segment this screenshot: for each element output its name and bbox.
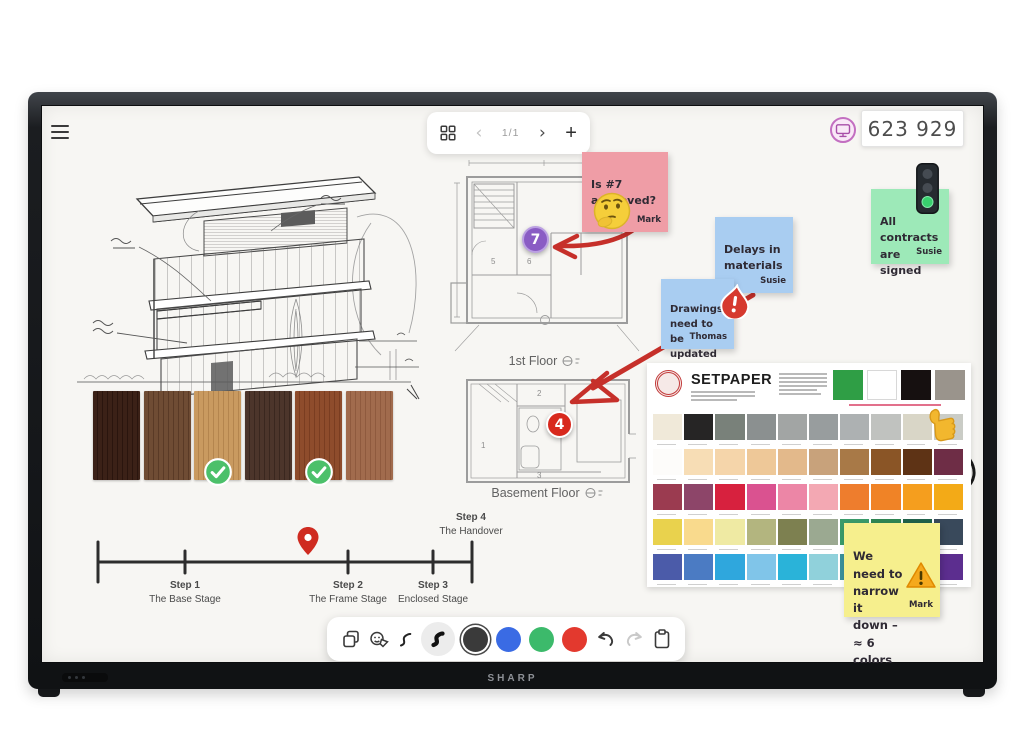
color-swatch: [715, 449, 744, 475]
color-swatch: [809, 484, 838, 510]
sticky-note-colors[interactable]: We need to narrow it down – ≈ 6 colors M…: [844, 523, 940, 617]
color-swatch: [778, 414, 807, 440]
thinking-emoji[interactable]: [592, 191, 632, 231]
note-author: Mark: [909, 599, 933, 612]
approved-check-icon: [204, 458, 232, 486]
spec-text-lines: [779, 373, 827, 395]
note-author: Thomas: [690, 331, 727, 344]
timeline-step-4: Step 4The Handover: [411, 511, 531, 539]
color-swatch: [840, 484, 869, 510]
paper-swatch: [833, 370, 863, 400]
room-number: 5: [491, 257, 495, 266]
share-screen-button[interactable]: [830, 117, 856, 143]
floor-plan-basement-label: Basement Floor: [461, 486, 636, 500]
scale-icon: [585, 487, 606, 499]
warning-icon: [905, 561, 937, 590]
color-swatch: [903, 484, 932, 510]
camera-sensor-module: [62, 673, 108, 682]
architecture-sketch[interactable]: [59, 151, 424, 403]
color-swatch: [747, 519, 776, 545]
paper-swatch: [867, 370, 897, 400]
color-swatch: [747, 484, 776, 510]
color-swatch: [653, 519, 682, 545]
thick-pen-icon-selected[interactable]: [421, 622, 455, 656]
page-indicator: 1/1: [502, 127, 520, 139]
color-swatch: [715, 519, 744, 545]
color-swatch: [684, 519, 713, 545]
session-code: 623 929: [861, 110, 964, 147]
location-pin-icon: [298, 527, 319, 555]
redo-icon[interactable]: [624, 631, 645, 647]
plan-marker-4[interactable]: 4: [546, 411, 573, 438]
color-swatch: [684, 414, 713, 440]
wood-sample[interactable]: [295, 391, 342, 480]
project-timeline[interactable]: Step 1The Base Stage Step 2The Frame Sta…: [91, 507, 541, 622]
approved-check-icon: [305, 458, 333, 486]
note-author: Susie: [916, 246, 942, 259]
monitor-foot-right: [963, 688, 985, 697]
add-page-button[interactable]: +: [565, 123, 577, 143]
color-swatch: [809, 519, 838, 545]
setpaper-brand: SETPAPER: [691, 372, 772, 388]
color-swatch: [684, 449, 713, 475]
color-swatch: [809, 449, 838, 475]
wood-sample[interactable]: [93, 391, 140, 480]
room-number: 3: [537, 471, 541, 480]
address-text-lines: [691, 391, 755, 401]
timeline-step-1: Step 1The Base Stage: [125, 579, 245, 607]
menu-icon[interactable]: [51, 125, 69, 139]
pen-color-selected[interactable]: [463, 627, 488, 652]
clipboard-icon[interactable]: [653, 629, 671, 649]
color-swatch: [778, 519, 807, 545]
setpaper-logo: [655, 370, 682, 397]
pen-color-option[interactable]: [496, 627, 521, 652]
page-navigation-bar: ‹ 1/1 › +: [427, 112, 590, 154]
timeline-step-3: Step 3Enclosed Stage: [373, 579, 493, 607]
sticker-tool-icon[interactable]: [369, 629, 390, 649]
color-swatch: [747, 554, 776, 580]
wood-sample[interactable]: [194, 391, 241, 480]
device-brand-logo: SHARP: [28, 673, 997, 684]
color-swatch: [809, 554, 838, 580]
color-swatch: [871, 449, 900, 475]
color-swatch: [778, 449, 807, 475]
color-swatch: [653, 484, 682, 510]
urgent-alert-icon[interactable]: [720, 284, 751, 319]
color-swatch: [934, 484, 963, 510]
paper-swatch: [901, 370, 931, 400]
thin-pen-icon[interactable]: [398, 631, 413, 648]
color-swatch: [747, 414, 776, 440]
display-bezel: SHARP ‹ 1/1 › +: [28, 92, 997, 689]
room-number: 6: [527, 257, 531, 266]
color-swatch: [840, 449, 869, 475]
monitor-foot-left: [38, 688, 60, 697]
drawing-toolbar: [327, 617, 685, 661]
note-author: Mark: [637, 214, 661, 227]
traffic-light-icon[interactable]: [916, 163, 939, 214]
wood-sample[interactable]: [346, 391, 393, 480]
color-swatch: [809, 414, 838, 440]
paper-large-swatches: [833, 370, 965, 400]
color-swatch: [778, 554, 807, 580]
grid-view-icon[interactable]: [440, 125, 456, 141]
color-swatch: [871, 414, 900, 440]
room-number: 1: [481, 441, 485, 450]
thumbs-up-sticker[interactable]: [925, 405, 961, 443]
material-samples[interactable]: [93, 391, 393, 480]
floor-plan-1st-label: 1st Floor: [461, 354, 631, 368]
color-swatch: [653, 554, 682, 580]
display-icon: [835, 123, 851, 138]
next-page-button[interactable]: ›: [539, 125, 546, 142]
color-swatch: [871, 484, 900, 510]
previous-page-button[interactable]: ‹: [476, 125, 483, 142]
pen-color-options: [463, 627, 587, 652]
wood-sample[interactable]: [245, 391, 292, 480]
color-swatch: [715, 484, 744, 510]
wood-sample[interactable]: [144, 391, 191, 480]
room-number: 2: [537, 389, 541, 398]
scale-icon: [562, 355, 583, 367]
color-swatch: [715, 414, 744, 440]
duplicate-icon[interactable]: [341, 629, 361, 649]
color-swatch: [840, 414, 869, 440]
paper-swatch: [935, 370, 965, 400]
pen-color-option[interactable]: [562, 627, 587, 652]
color-swatch: [715, 554, 744, 580]
pen-color-option[interactable]: [529, 627, 554, 652]
plan-marker-7[interactable]: 7: [522, 226, 549, 253]
whiteboard-canvas[interactable]: ‹ 1/1 › + 623 929: [41, 105, 984, 663]
color-swatch: [747, 449, 776, 475]
color-swatch: [653, 414, 682, 440]
undo-icon[interactable]: [595, 631, 616, 647]
color-swatch: [778, 484, 807, 510]
color-swatch: [684, 484, 713, 510]
color-swatch: [934, 449, 963, 475]
color-swatch: [653, 449, 682, 475]
color-swatch: [903, 449, 932, 475]
page: { "device": { "brand": "SHARP" }, "white…: [0, 0, 1024, 750]
color-swatch: [684, 554, 713, 580]
note-author: Susie: [760, 275, 786, 288]
